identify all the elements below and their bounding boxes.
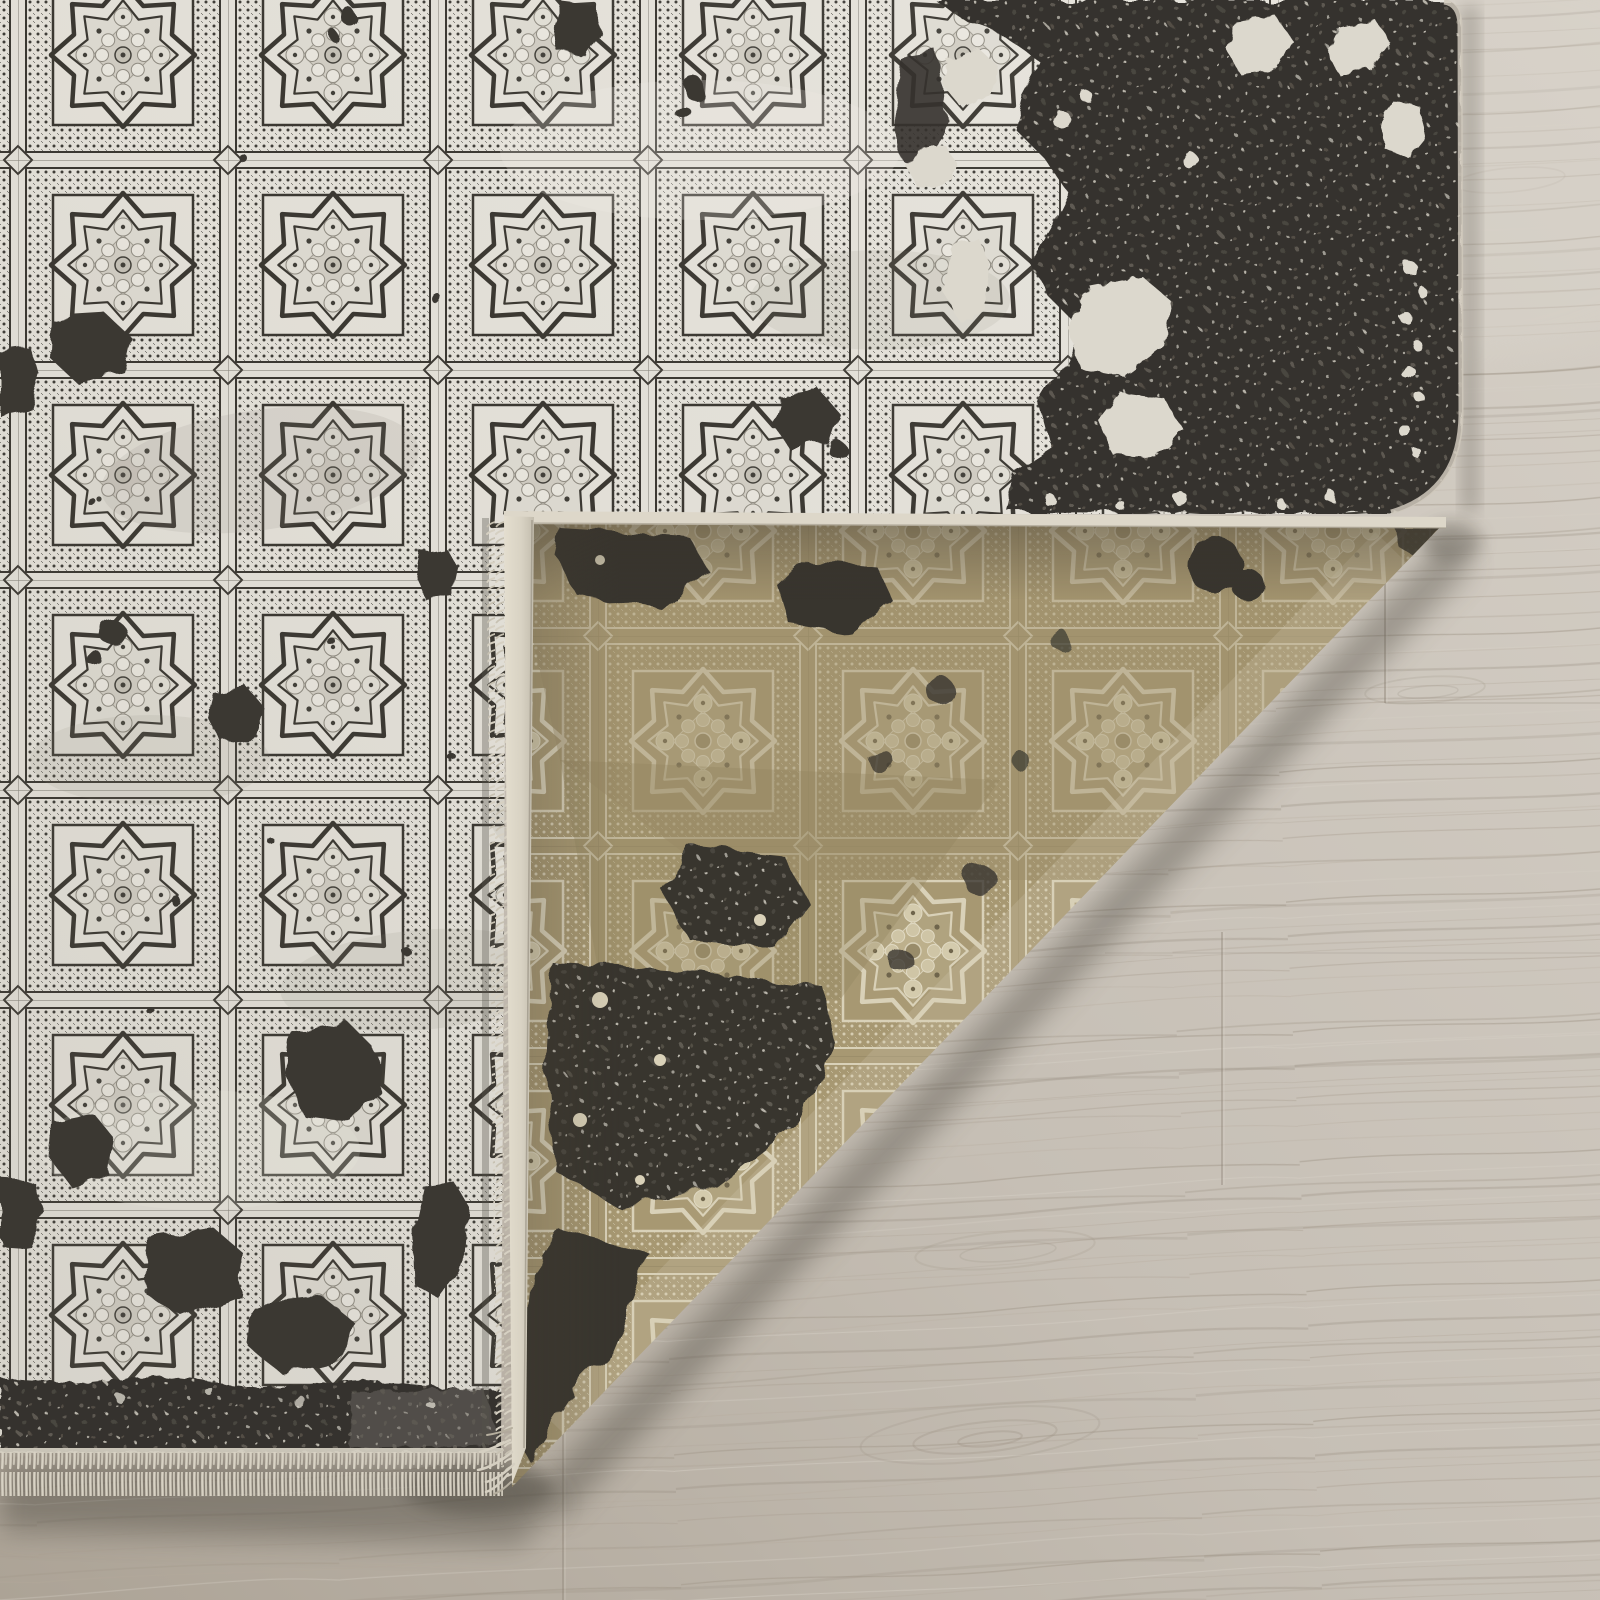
product-photo: [0, 0, 1600, 1600]
rug-fringe: [0, 1448, 503, 1496]
rug-border-band: [0, 1376, 506, 1452]
rug-scene: [0, 0, 1600, 1600]
right-edge-shadow: [1462, 6, 1478, 511]
